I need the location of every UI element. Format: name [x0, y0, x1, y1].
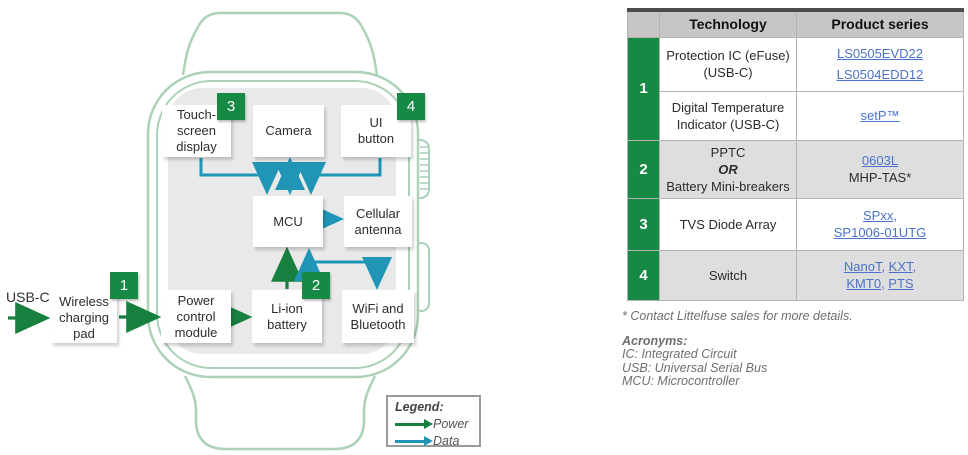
- block-cellular-antenna: Cellular antenna: [344, 196, 412, 247]
- block-label-line: pad: [73, 326, 95, 342]
- product-table-container: Technology Product series 1 Protection I…: [627, 8, 963, 301]
- technology-cell: Protection IC (eFuse) (USB-C): [660, 37, 797, 91]
- badge-3: 3: [217, 93, 245, 120]
- block-camera: Camera: [253, 105, 324, 157]
- block-label-line: MCU: [273, 214, 303, 230]
- legend-data-label: Data: [433, 434, 459, 448]
- product-text-mhp-tas: MHP-TAS*: [803, 169, 957, 186]
- product-table: Technology Product series 1 Protection I…: [627, 8, 964, 301]
- block-label-line: WiFi and: [352, 301, 403, 317]
- product-link-ls0504edd12[interactable]: LS0504EDD12: [837, 67, 924, 82]
- legend-power-row: Power: [395, 417, 479, 431]
- block-label-line: battery: [267, 317, 307, 333]
- table-row-2: 2 PPTC OR Battery Mini-breakers 0603L MH…: [628, 140, 964, 198]
- acronym-line: MCU: Microcontroller: [622, 375, 962, 389]
- product-series-cell: setP™: [797, 91, 964, 140]
- block-label-line: Wireless: [59, 294, 109, 310]
- separator: ,: [893, 208, 897, 223]
- block-label-line: display: [176, 139, 216, 155]
- block-label-line: control: [176, 309, 215, 325]
- product-link-kxt[interactable]: KXT: [889, 259, 913, 274]
- contact-footnote: * Contact Littelfuse sales for more deta…: [622, 310, 962, 324]
- block-label-line: Power: [178, 293, 215, 309]
- block-wifi-bluetooth: WiFi and Bluetooth: [342, 290, 414, 343]
- legend-title: Legend:: [395, 400, 479, 414]
- block-label-line: button: [358, 131, 394, 147]
- legend-power-label: Power: [433, 417, 468, 431]
- technology-cell: Digital Temperature Indicator (USB-C): [660, 91, 797, 140]
- table-row-1b: Digital Temperature Indicator (USB-C) se…: [628, 91, 964, 140]
- badge-4: 4: [397, 93, 425, 120]
- table-row-3: 3 TVS Diode Array SPxx, SP1006-01UTG: [628, 198, 964, 250]
- technology-text: Battery Mini-breakers: [666, 178, 790, 195]
- block-label-line: antenna: [355, 222, 402, 238]
- technology-cell: TVS Diode Array: [660, 198, 797, 250]
- technology-text: Indicator (USB-C): [666, 116, 790, 133]
- corner-header-cell: [628, 10, 660, 37]
- product-link-0603l[interactable]: 0603L: [862, 153, 898, 168]
- product-link-spxx[interactable]: SPxx: [863, 208, 893, 223]
- product-link-sp1006-01utg[interactable]: SP1006-01UTG: [834, 225, 927, 240]
- block-label-line: Cellular: [356, 206, 400, 222]
- technology-header: Technology: [660, 10, 797, 37]
- acronyms-title: Acronyms:: [622, 335, 962, 349]
- product-series-cell: SPxx, SP1006-01UTG: [797, 198, 964, 250]
- power-arrow-icon: [395, 423, 425, 426]
- product-link-kmt0[interactable]: KMT0: [846, 276, 881, 291]
- row-number-cell: 4: [628, 250, 660, 300]
- watch-top-band: [183, 13, 377, 75]
- smartwatch-diagram-graphic: [0, 0, 500, 455]
- technology-cell: Switch: [660, 250, 797, 300]
- block-label-line: module: [175, 325, 218, 341]
- block-power-control-module: Power control module: [161, 290, 231, 343]
- block-label-line: Camera: [265, 123, 311, 139]
- product-link-ls0505evd22[interactable]: LS0505EVD22: [837, 46, 923, 61]
- technology-text: (USB-C): [666, 64, 790, 81]
- row-number-cell: 2: [628, 140, 660, 198]
- block-label-line: screen: [177, 123, 216, 139]
- table-header-row: Technology Product series: [628, 10, 964, 37]
- technology-text: Digital Temperature: [666, 99, 790, 116]
- technology-text: PPTC: [666, 144, 790, 161]
- badge-1: 1: [110, 272, 138, 299]
- legend-box: Legend: Power Data: [386, 395, 481, 447]
- separator: ,: [913, 259, 917, 274]
- block-label-line: UI: [370, 115, 383, 131]
- page: USB-C Touch- screen display Camera UI bu…: [0, 0, 968, 455]
- acronym-line: USB: Universal Serial Bus: [622, 362, 962, 376]
- product-link-nanot[interactable]: NanoT: [844, 259, 882, 274]
- product-series-cell: 0603L MHP-TAS*: [797, 140, 964, 198]
- block-label-line: Li-ion: [271, 301, 303, 317]
- acronym-line: IC: Integrated Circuit: [622, 348, 962, 362]
- table-row-1a: 1 Protection IC (eFuse) (USB-C) LS0505EV…: [628, 37, 964, 91]
- product-series-header: Product series: [797, 10, 964, 37]
- watch-bottom-band: [185, 376, 375, 449]
- block-label-line: Bluetooth: [351, 317, 406, 333]
- technology-or-text: OR: [666, 161, 790, 178]
- table-row-4: 4 Switch NanoT, KXT, KMT0, PTS: [628, 250, 964, 300]
- separator: ,: [881, 259, 888, 274]
- block-label-line: charging: [59, 310, 109, 326]
- product-link-pts[interactable]: PTS: [888, 276, 913, 291]
- footnotes: * Contact Littelfuse sales for more deta…: [622, 310, 962, 389]
- usbc-label: USB-C: [6, 289, 54, 305]
- block-label-line: Touch-: [177, 107, 216, 123]
- block-mcu: MCU: [253, 196, 323, 247]
- legend-data-row: Data: [395, 434, 479, 448]
- product-series-cell: NanoT, KXT, KMT0, PTS: [797, 250, 964, 300]
- data-arrow-icon: [395, 440, 425, 443]
- badge-2: 2: [302, 272, 330, 299]
- technology-cell: PPTC OR Battery Mini-breakers: [660, 140, 797, 198]
- row-number-cell: 3: [628, 198, 660, 250]
- row-number-cell: 1: [628, 37, 660, 140]
- product-series-cell: LS0505EVD22 LS0504EDD12: [797, 37, 964, 91]
- product-link-setp[interactable]: setP™: [860, 108, 899, 123]
- technology-text: Protection IC (eFuse): [666, 47, 790, 64]
- block-wireless-charging-pad: Wireless charging pad: [51, 292, 117, 343]
